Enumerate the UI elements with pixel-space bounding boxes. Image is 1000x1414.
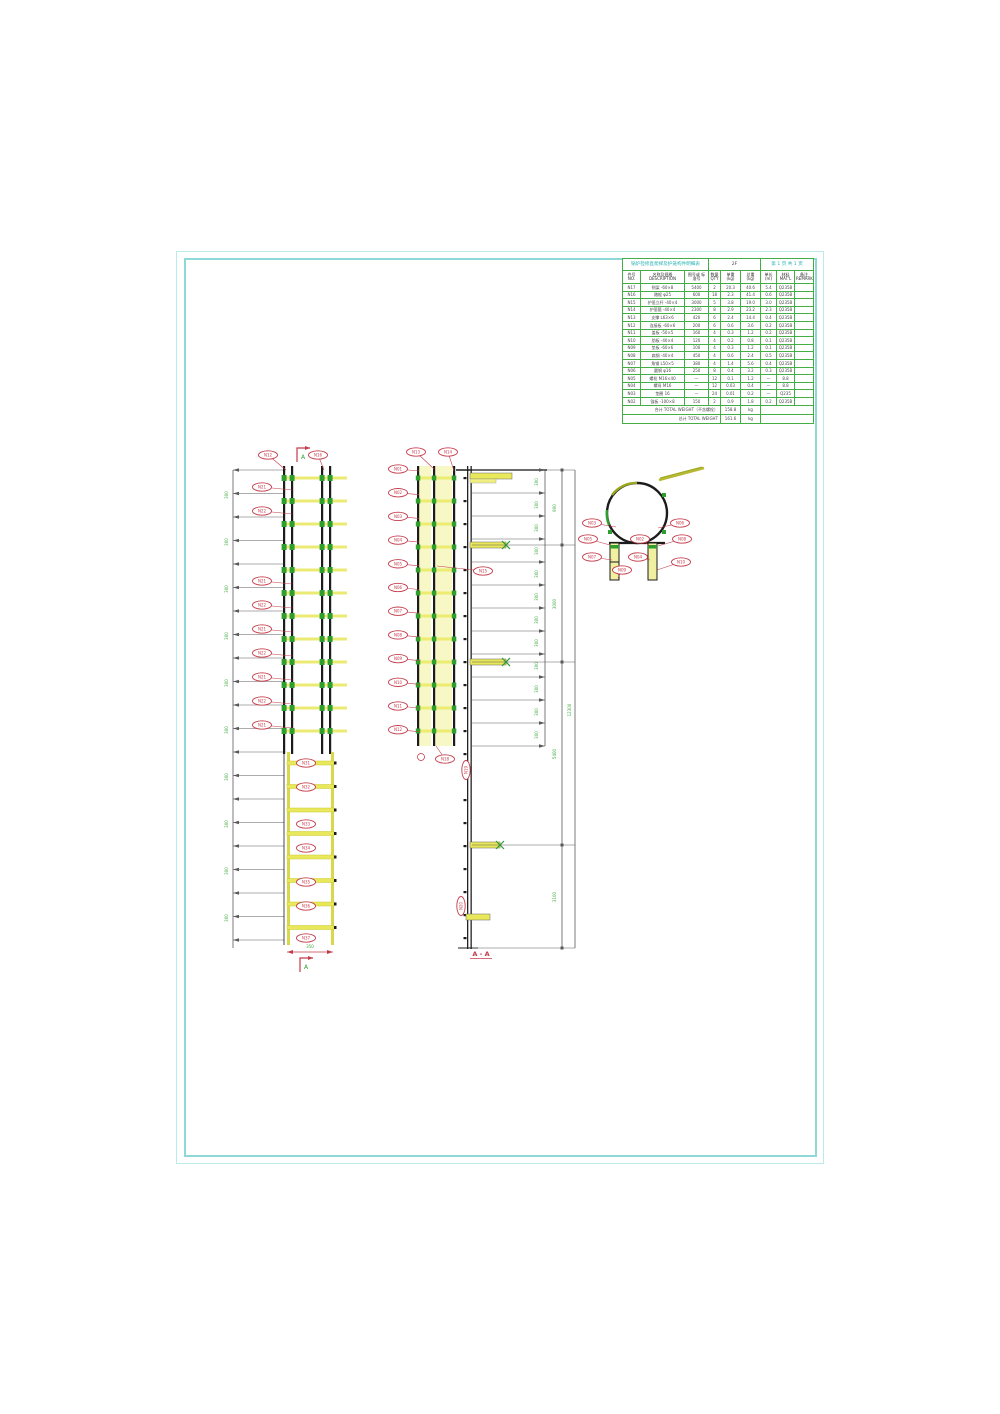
part-balloon: N21 xyxy=(253,577,293,585)
part-balloon: N34 xyxy=(297,844,316,852)
balloon-label: N06 xyxy=(676,521,685,526)
part-balloon: N07 xyxy=(583,553,613,561)
balloon-label: N22 xyxy=(258,651,267,656)
dim-arrow xyxy=(233,492,239,496)
dim-arrow xyxy=(233,938,239,942)
part-balloon: N22 xyxy=(253,697,293,705)
part-balloon: N07 xyxy=(389,607,420,615)
balloon-label: N21 xyxy=(258,723,267,728)
balloon-label: N07 xyxy=(588,555,597,560)
dimension-text: 3000 xyxy=(552,598,557,609)
part-balloon: N11 xyxy=(389,702,420,710)
balloon-label: N32 xyxy=(302,785,311,790)
dimension-text: 300 xyxy=(224,773,229,781)
part-balloon: N22 xyxy=(253,601,293,609)
part-balloon: N33 xyxy=(297,820,316,828)
dim-arrow xyxy=(233,703,239,707)
balloon-label: N03 xyxy=(588,521,597,526)
balloon-label: N09 xyxy=(394,656,403,661)
balloon-label: N05 xyxy=(584,537,593,542)
dimension-text: 3100 xyxy=(552,891,557,902)
part-balloon: N21 xyxy=(253,625,293,633)
section-letter: A xyxy=(301,454,306,461)
drawing-sheet: 锅炉检修直爬梯及护笼构件明细表2F第 1 页 共 1 页件号 NO.名称及规格 … xyxy=(0,0,1000,1414)
dimension-text: 300 xyxy=(224,820,229,828)
balloon-label: N05 xyxy=(394,561,403,566)
balloon-label: N36 xyxy=(302,904,311,909)
balloon-label: N22 xyxy=(258,603,267,608)
dimension-text: 300 xyxy=(534,662,539,670)
dimension-text: 300 xyxy=(224,585,229,593)
dim-arrow xyxy=(233,515,239,519)
dimension-text: 300 xyxy=(224,726,229,734)
balloon-label: N14 xyxy=(444,450,453,455)
left-elevation-view: 300300300300300300300300300300N12N16N21N… xyxy=(224,446,347,972)
part-balloon: N21 xyxy=(253,721,293,729)
part-balloon: N12 xyxy=(259,451,287,470)
part-balloon: N04 xyxy=(629,553,651,561)
dim-arrow xyxy=(233,797,239,801)
part-balloon: N12 xyxy=(389,726,420,734)
dimension-text: 300 xyxy=(534,708,539,716)
dim-arrow xyxy=(539,606,545,610)
dim-arrow xyxy=(539,698,545,702)
dimension-text: 5400 xyxy=(552,748,557,759)
balloon-label: N02 xyxy=(394,490,403,495)
dim-arrow xyxy=(233,680,239,684)
balloon-label: N12 xyxy=(264,453,273,458)
balloon-label: N08 xyxy=(394,632,403,637)
balloon-label: N02 xyxy=(636,537,645,542)
part-balloon: N10 xyxy=(657,558,691,570)
dim-arrow xyxy=(539,629,545,633)
cad-drawing: 300300300300300300300300300300N12N16N21N… xyxy=(0,0,1000,1414)
cage-plan-detail: N03N05N07N09N02N04N06N08N10 xyxy=(579,467,705,580)
dim-arrow xyxy=(233,727,239,731)
dim-arrow xyxy=(233,774,239,778)
balloon-label: N22 xyxy=(258,699,267,704)
part-balloon: N02 xyxy=(389,489,420,497)
part-balloon: N20 xyxy=(457,897,465,916)
part-balloon: N32 xyxy=(297,783,316,791)
part-balloon: N02 xyxy=(631,535,651,546)
dimension-text: 900 xyxy=(552,504,557,512)
part-balloon: N05 xyxy=(579,535,611,545)
part-balloon: N36 xyxy=(297,902,316,910)
balloon-label: N07 xyxy=(394,609,403,614)
dimension-text: 300 xyxy=(534,639,539,647)
section-letter: A xyxy=(304,964,309,971)
part-balloon: N05 xyxy=(389,560,420,568)
balloon-label: N15 xyxy=(479,569,488,574)
dimension-text: 300 xyxy=(534,524,539,532)
dim-arrow xyxy=(233,750,239,754)
balloon-label: N21 xyxy=(258,627,267,632)
part-balloon: N01 xyxy=(389,465,420,473)
part-balloon: N19 xyxy=(462,761,470,780)
balloon-label: N01 xyxy=(394,467,403,472)
part-balloon: N21 xyxy=(253,673,293,681)
part-balloon: N37 xyxy=(297,934,316,942)
balloon-label: N10 xyxy=(677,560,686,565)
dim-arrow xyxy=(233,844,239,848)
dim-arrow xyxy=(539,744,545,748)
dimension-text: 300 xyxy=(534,547,539,555)
dim-arrow xyxy=(233,633,239,637)
part-balloon: N13 xyxy=(407,448,435,469)
balloon-label: N09 xyxy=(618,568,627,573)
part-balloon: N22 xyxy=(253,649,293,657)
part-balloon: N09 xyxy=(389,654,420,662)
dim-arrow xyxy=(539,560,545,564)
dim-arrow xyxy=(233,609,239,613)
balloon-label: N11 xyxy=(394,704,403,709)
dim-arrow xyxy=(233,586,239,590)
balloon-label: N37 xyxy=(302,936,311,941)
part-balloon: N18 xyxy=(436,746,455,763)
page: { "table": { "title_left": "锅炉检修直爬梯及护笼构件… xyxy=(0,0,1000,1414)
dim-arrow xyxy=(539,583,545,587)
dimension-text: 300 xyxy=(534,501,539,509)
dimension-text: 300 xyxy=(534,731,539,739)
dimension-text: 300 xyxy=(534,685,539,693)
balloon-label: N12 xyxy=(394,727,403,732)
balloon-label: N04 xyxy=(394,538,403,543)
balloon-label: N21 xyxy=(258,485,267,490)
dim-arrow xyxy=(233,468,239,472)
balloon-label: N34 xyxy=(302,846,311,851)
dimension-text: 350 xyxy=(306,944,314,949)
dim-arrow xyxy=(233,821,239,825)
part-balloon: N08 xyxy=(389,631,420,639)
part-balloon: N06 xyxy=(658,519,690,528)
balloon-label: N06 xyxy=(394,585,403,590)
dimension-text: 300 xyxy=(224,867,229,875)
dim-arrow xyxy=(539,537,545,541)
dimension-text: 300 xyxy=(534,593,539,601)
caption-text: A - A xyxy=(472,950,489,958)
part-balloon: N03 xyxy=(389,512,420,520)
dimension-text: 300 xyxy=(224,679,229,687)
balloon-label: N35 xyxy=(302,880,311,885)
part-balloon: N35 xyxy=(297,878,316,886)
dimension-text: 300 xyxy=(224,538,229,546)
balloon-label: N03 xyxy=(394,514,403,519)
part-balloon: N08 xyxy=(658,535,692,546)
dimension-text: 300 xyxy=(224,914,229,922)
balloon-label: N04 xyxy=(634,555,643,560)
balloon-label: N33 xyxy=(302,822,311,827)
section-marker: A xyxy=(300,956,313,972)
dimension-text: 300 xyxy=(534,570,539,578)
dimension-text: 300 xyxy=(534,616,539,624)
balloon-label: N31 xyxy=(302,761,311,766)
dim-arrow xyxy=(539,675,545,679)
dim-arrow xyxy=(233,562,239,566)
balloon-label: N08 xyxy=(678,537,687,542)
part-balloon: N10 xyxy=(389,678,420,686)
part-balloon: N31 xyxy=(297,759,316,767)
balloon-label: N21 xyxy=(258,579,267,584)
dimension-text: 300 xyxy=(224,491,229,499)
dim-arrow xyxy=(233,539,239,543)
dimension-text: 300 xyxy=(534,478,539,486)
balloon-label: N19 xyxy=(464,766,469,775)
balloon-label: N21 xyxy=(258,675,267,680)
part-balloon: N16 xyxy=(309,451,328,470)
dim-arrow xyxy=(539,652,545,656)
part-balloon: N03 xyxy=(583,519,617,527)
part-balloon: N22 xyxy=(253,507,293,515)
balloon-label: N18 xyxy=(441,757,450,762)
section-caption: A - A xyxy=(470,950,492,959)
section-marker: A xyxy=(297,446,310,462)
dim-arrow xyxy=(233,891,239,895)
dim-arrow xyxy=(539,491,545,495)
dimension-text: 300 xyxy=(224,632,229,640)
part-balloon: N21 xyxy=(253,483,293,491)
balloon-label: N22 xyxy=(258,509,267,514)
dim-arrow xyxy=(233,915,239,919)
dimension-text: 12300 xyxy=(567,703,572,716)
balloon-label: N16 xyxy=(314,453,323,458)
balloon-label: N10 xyxy=(394,680,403,685)
dim-arrow xyxy=(233,656,239,660)
balloon-label: N20 xyxy=(459,902,464,911)
dim-arrow xyxy=(539,514,545,518)
part-balloon: N06 xyxy=(389,583,420,591)
part-balloon: N04 xyxy=(389,536,420,544)
dim-arrow xyxy=(539,721,545,725)
section-view-a-a: 3003003003003003003003003003003003009003… xyxy=(389,448,576,959)
balloon-label: N13 xyxy=(412,450,421,455)
dim-arrow xyxy=(233,868,239,872)
